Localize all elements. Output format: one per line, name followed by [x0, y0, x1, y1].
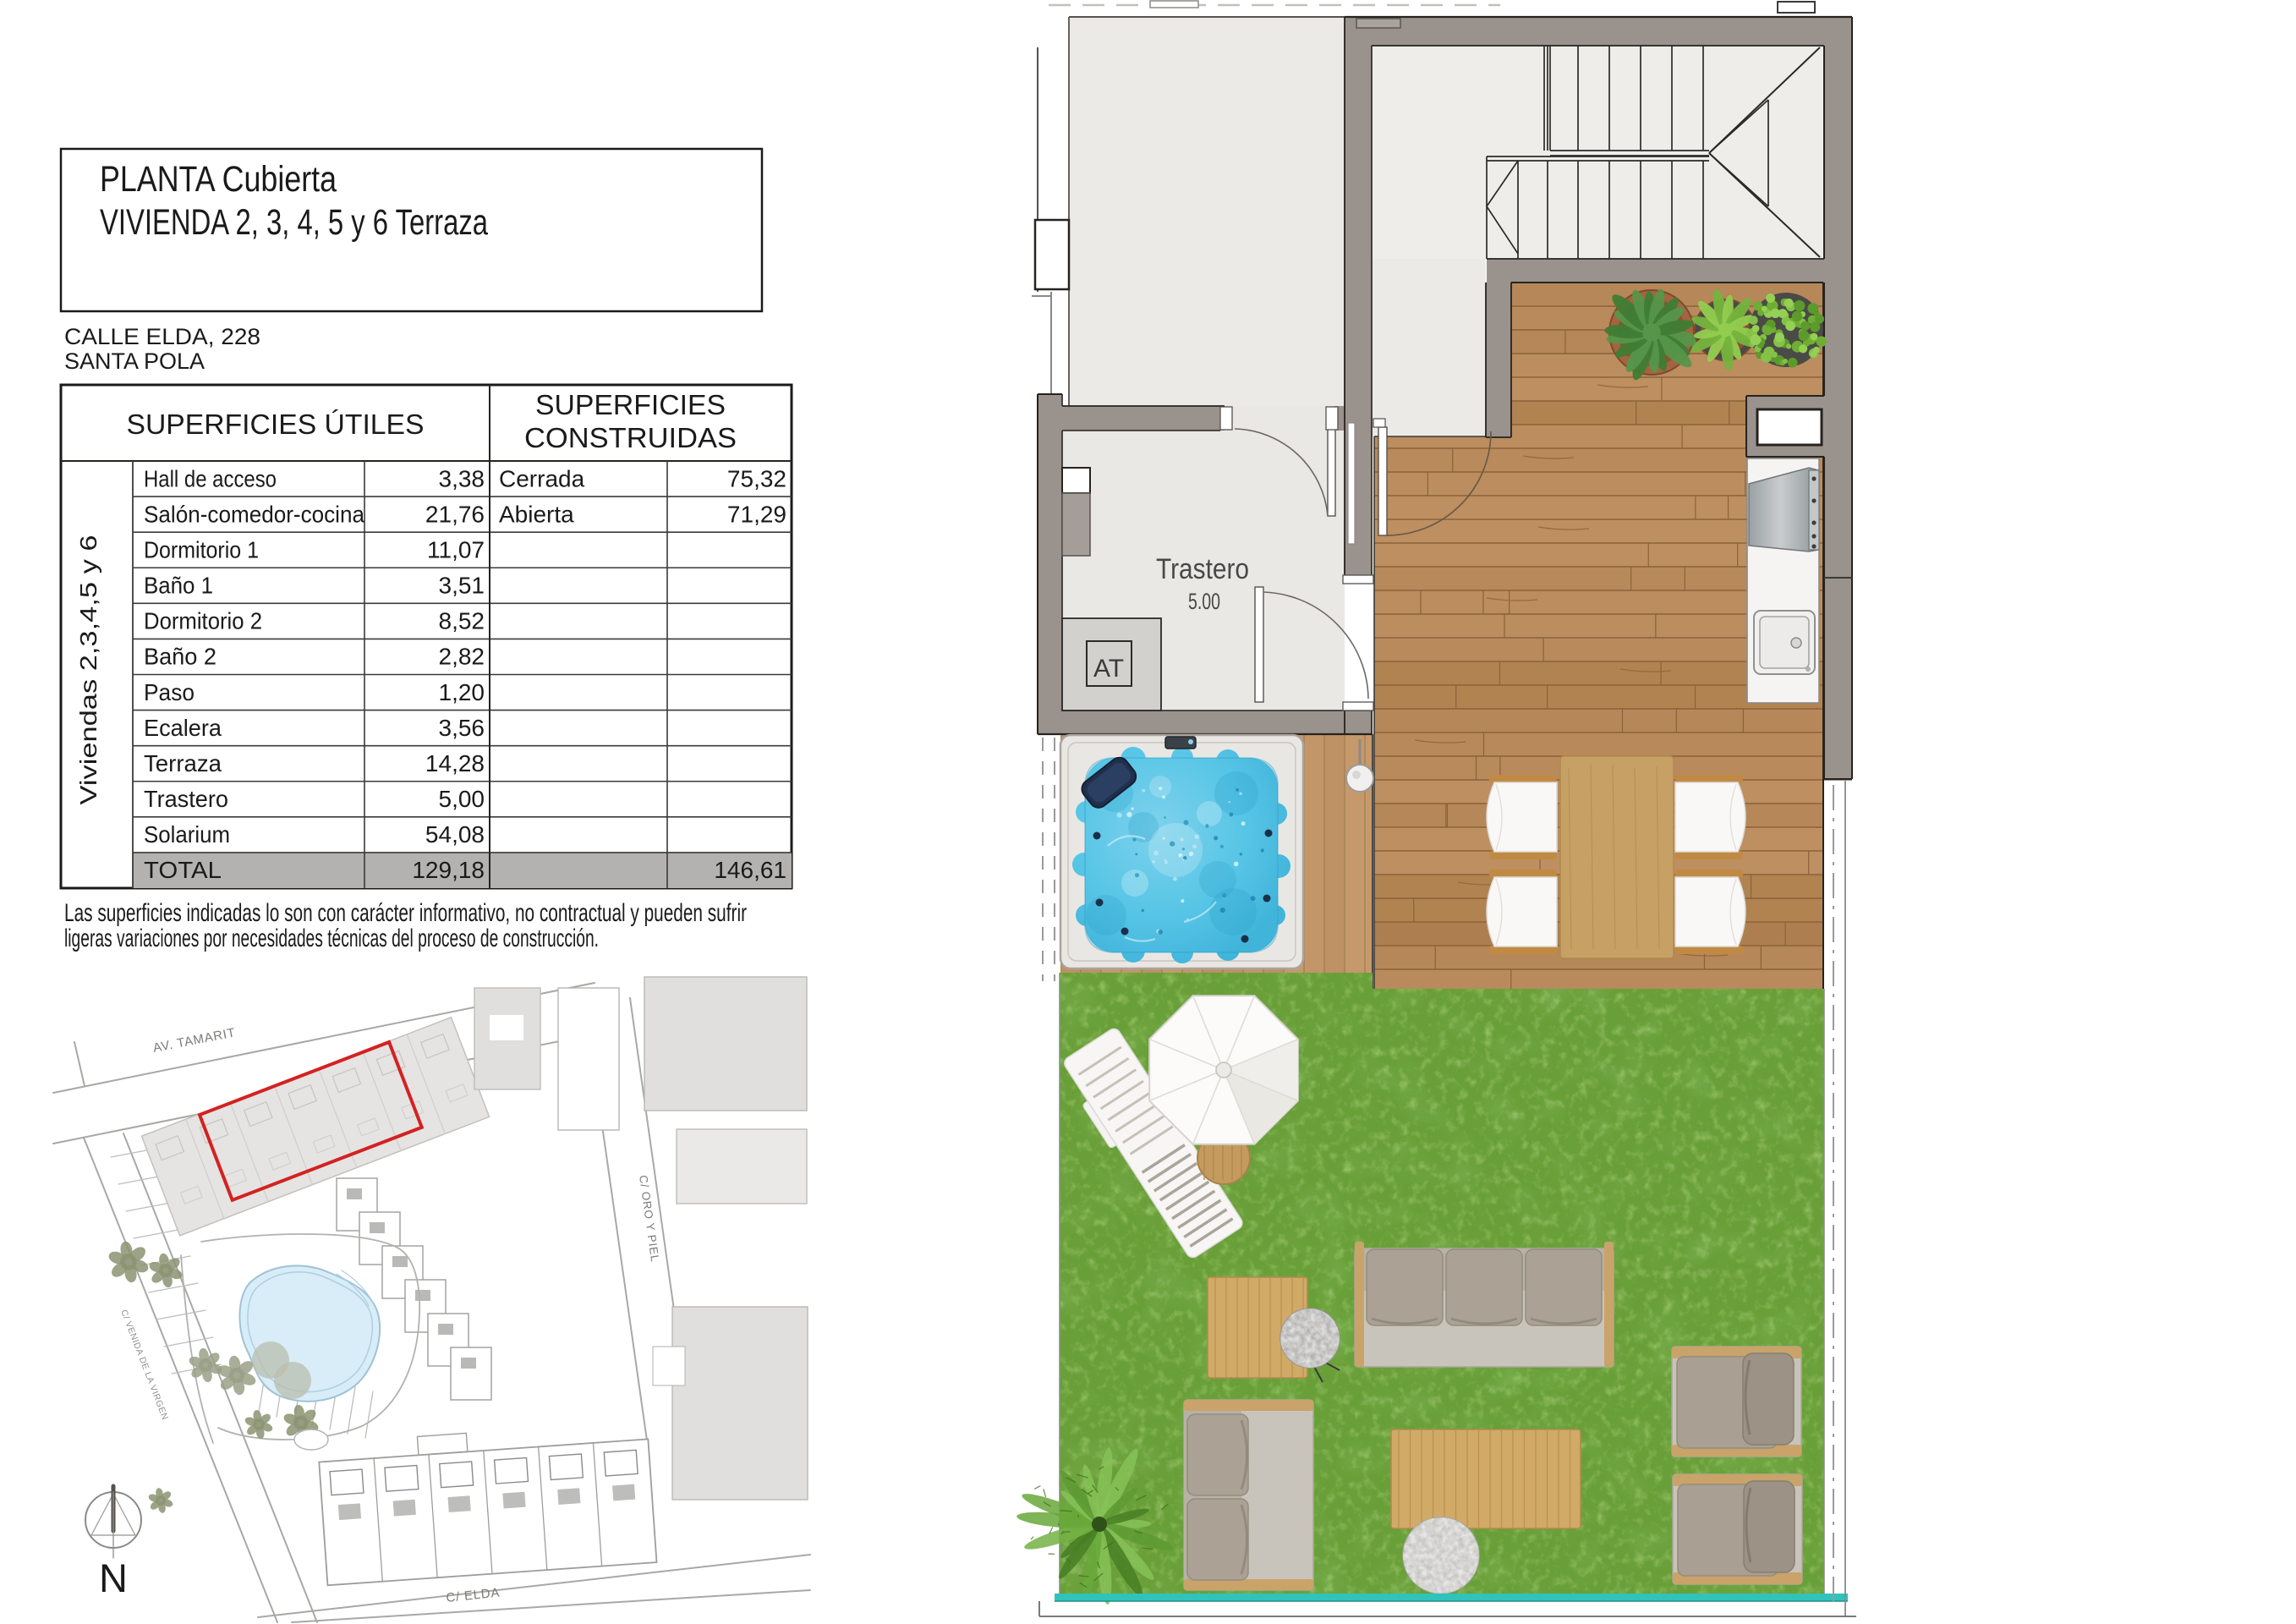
svg-text:1,20: 1,20	[439, 679, 485, 705]
svg-text:Trastero: Trastero	[144, 786, 228, 812]
svg-text:8,52: 8,52	[439, 608, 485, 634]
svg-text:VIVIENDA 2, 3, 4, 5 y 6 Terraz: VIVIENDA 2, 3, 4, 5 y 6 Terraza	[100, 202, 488, 243]
svg-text:Cerrada: Cerrada	[499, 465, 585, 491]
svg-text:Trastero: Trastero	[1156, 553, 1249, 585]
svg-text:Dormitorio 1: Dormitorio 1	[144, 536, 259, 562]
svg-text:SUPERFICIES ÚTILES: SUPERFICIES ÚTILES	[127, 409, 425, 440]
svg-text:Terraza: Terraza	[144, 750, 222, 776]
svg-text:146,61: 146,61	[714, 857, 786, 883]
svg-text:Dormitorio 2: Dormitorio 2	[144, 608, 262, 634]
svg-text:Baño 2: Baño 2	[144, 644, 216, 670]
svg-text:TOTAL: TOTAL	[144, 857, 222, 883]
svg-text:CONSTRUIDAS: CONSTRUIDAS	[524, 422, 737, 453]
svg-text:21,76: 21,76	[425, 501, 485, 527]
svg-text:3,51: 3,51	[439, 573, 485, 599]
svg-text:C/ ORO Y PIEL: C/ ORO Y PIEL	[637, 1174, 661, 1263]
svg-text:5.00: 5.00	[1188, 589, 1220, 614]
svg-text:SANTA POLA: SANTA POLA	[64, 348, 205, 374]
svg-text:129,18: 129,18	[412, 857, 485, 883]
svg-text:PLANTA Cubierta: PLANTA Cubierta	[100, 159, 337, 200]
svg-text:3,56: 3,56	[439, 715, 485, 741]
svg-text:Abierta: Abierta	[499, 501, 574, 527]
svg-text:71,29: 71,29	[727, 501, 786, 527]
svg-text:ligeras variaciones por necesi: ligeras variaciones por necesidades técn…	[64, 924, 599, 952]
svg-text:3,38: 3,38	[439, 465, 485, 491]
svg-text:N: N	[99, 1555, 128, 1600]
svg-text:Las superficies indicadas lo s: Las superficies indicadas lo son con car…	[64, 899, 747, 927]
svg-text:C/ VENIDA DE LA VIRGEN: C/ VENIDA DE LA VIRGEN	[118, 1309, 170, 1422]
svg-text:Ecalera: Ecalera	[144, 715, 222, 741]
svg-text:75,32: 75,32	[727, 465, 786, 491]
svg-text:Viviendas 2,3,4,5 y 6: Viviendas 2,3,4,5 y 6	[75, 535, 101, 805]
svg-text:C/ ELDA: C/ ELDA	[446, 1585, 501, 1605]
svg-text:54,08: 54,08	[425, 821, 485, 848]
svg-text:SUPERFICIES: SUPERFICIES	[535, 389, 726, 420]
svg-text:CALLE ELDA, 228: CALLE ELDA, 228	[64, 324, 260, 349]
svg-text:11,07: 11,07	[427, 536, 485, 562]
svg-text:Solarium: Solarium	[144, 821, 230, 848]
svg-text:Paso: Paso	[144, 679, 195, 705]
svg-text:Baño 1: Baño 1	[144, 573, 213, 599]
svg-text:14,28: 14,28	[425, 750, 485, 776]
svg-text:AT: AT	[1093, 655, 1124, 683]
svg-text:2,82: 2,82	[439, 644, 485, 670]
svg-text:5,00: 5,00	[439, 786, 485, 812]
svg-text:Salón-comedor-cocina: Salón-comedor-cocina	[144, 501, 364, 527]
svg-text:Hall de acceso: Hall de acceso	[144, 465, 277, 491]
svg-text:AV. TAMARIT: AV. TAMARIT	[152, 1025, 238, 1056]
